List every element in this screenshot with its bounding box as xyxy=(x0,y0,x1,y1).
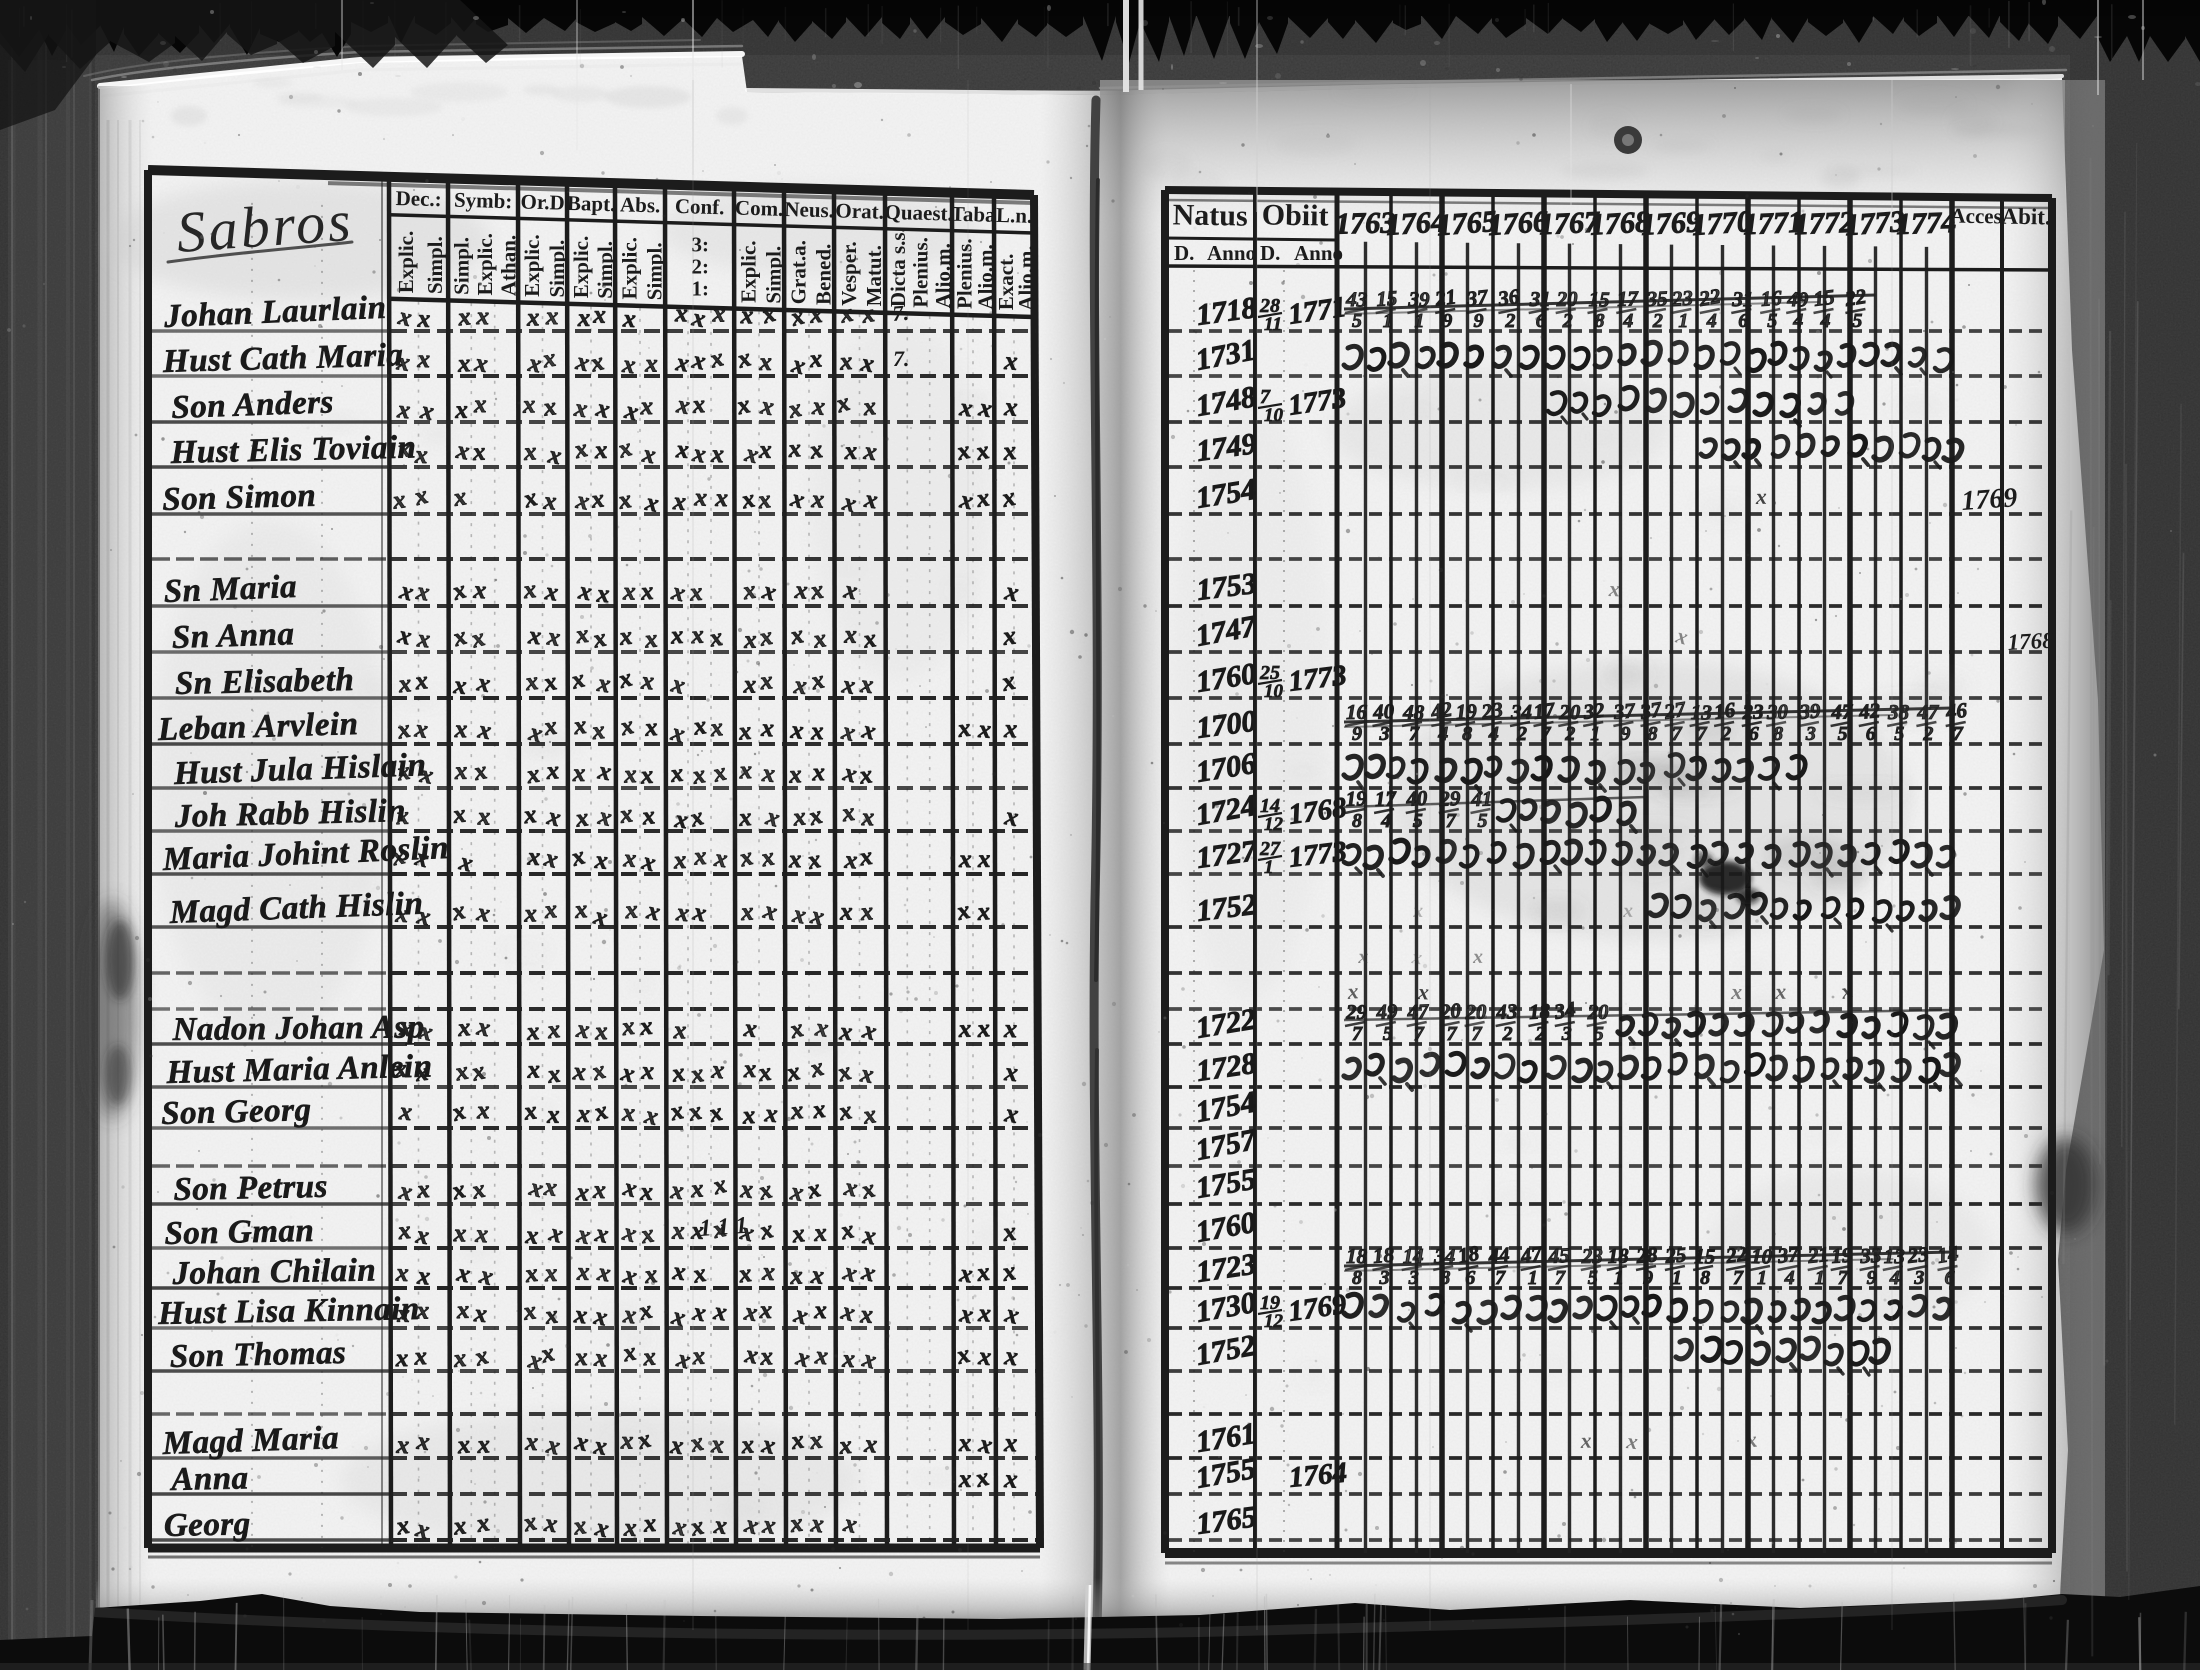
svg-text:x: x xyxy=(861,393,877,421)
svg-text:23: 23 xyxy=(1670,286,1694,312)
svg-text:x: x xyxy=(714,485,728,512)
svg-text:x: x xyxy=(415,1263,431,1291)
svg-text:x: x xyxy=(841,1346,856,1374)
svg-text:22: 22 xyxy=(1724,1241,1749,1268)
svg-text:Joh Rabb Hislin: Joh Rabb Hislin xyxy=(173,793,406,835)
svg-text:x: x xyxy=(396,1301,410,1328)
svg-text:5: 5 xyxy=(1594,1023,1604,1045)
svg-text:x: x xyxy=(743,671,757,698)
svg-text:7: 7 xyxy=(1447,1023,1458,1045)
svg-text:x: x xyxy=(524,1428,539,1456)
svg-text:29: 29 xyxy=(1438,786,1462,811)
svg-text:x: x xyxy=(455,1431,471,1459)
svg-text:Son Gman: Son Gman xyxy=(164,1213,315,1252)
svg-text:7: 7 xyxy=(1446,810,1457,832)
svg-text:5: 5 xyxy=(1838,723,1848,745)
svg-text:x: x xyxy=(451,1345,467,1373)
svg-text:x: x xyxy=(394,901,409,928)
svg-text:x: x xyxy=(476,1431,491,1459)
svg-text:x: x xyxy=(710,1431,725,1459)
svg-text:Alio.m.: Alio.m. xyxy=(1014,245,1038,310)
svg-text:x: x xyxy=(1003,346,1019,376)
svg-text:Anno: Anno xyxy=(1294,241,1343,265)
svg-text:7: 7 xyxy=(1352,1023,1363,1045)
svg-text:Conf.: Conf. xyxy=(675,194,725,219)
svg-text:x: x xyxy=(415,1176,430,1204)
svg-text:3: 3 xyxy=(1805,723,1816,745)
svg-text:Bened.: Bened. xyxy=(812,244,836,305)
svg-text:1764: 1764 xyxy=(1288,1457,1349,1494)
svg-text:x: x xyxy=(545,303,559,330)
svg-text:8: 8 xyxy=(1595,310,1605,332)
svg-text:32: 32 xyxy=(1581,698,1606,724)
svg-text:x: x xyxy=(395,803,410,831)
svg-text:x: x xyxy=(787,761,802,789)
svg-text:Leban Arvlein: Leban Arvlein xyxy=(156,706,359,748)
svg-text:1768: 1768 xyxy=(2007,628,2055,655)
svg-text:x: x xyxy=(710,441,725,469)
svg-text:x: x xyxy=(863,1431,879,1459)
svg-text:Hust Elis Toviain: Hust Elis Toviain xyxy=(169,429,416,471)
svg-text:Natus: Natus xyxy=(1172,198,1248,232)
svg-text:Plenius.: Plenius. xyxy=(909,237,933,308)
svg-text:6: 6 xyxy=(1866,723,1876,745)
svg-text:x: x xyxy=(574,1344,588,1371)
svg-text:1: 1 xyxy=(1528,1267,1538,1289)
svg-text:x: x xyxy=(395,1345,409,1372)
svg-text:x: x xyxy=(977,716,992,744)
svg-text:x: x xyxy=(710,1056,725,1084)
svg-text:10: 10 xyxy=(1264,405,1284,426)
svg-text:8: 8 xyxy=(1440,1267,1450,1289)
svg-text:x: x xyxy=(741,1102,756,1130)
svg-text:3: 3 xyxy=(1913,1267,1924,1289)
svg-text:x: x xyxy=(414,442,429,470)
svg-text:Sn Maria: Sn Maria xyxy=(163,569,298,610)
svg-text:5: 5 xyxy=(1478,810,1488,832)
svg-text:x: x xyxy=(592,1177,606,1204)
svg-text:x: x xyxy=(839,899,853,926)
svg-text:x: x xyxy=(542,896,558,924)
svg-text:x: x xyxy=(473,391,487,418)
svg-text:x: x xyxy=(837,1432,853,1460)
svg-text:x: x xyxy=(787,435,802,463)
svg-text:Explic.: Explic. xyxy=(569,236,593,298)
svg-text:x: x xyxy=(471,439,486,467)
svg-text:2: 2 xyxy=(1504,310,1515,332)
svg-text:45: 45 xyxy=(1547,1243,1570,1268)
svg-text:Son Georg: Son Georg xyxy=(161,1092,312,1132)
svg-text:x: x xyxy=(571,1058,587,1086)
svg-text:x: x xyxy=(1003,714,1018,743)
svg-text:x: x xyxy=(811,759,825,786)
svg-text:2: 2 xyxy=(1564,723,1575,745)
svg-text:Son Anders: Son Anders xyxy=(171,384,335,426)
svg-text:x: x xyxy=(711,300,725,327)
svg-text:x: x xyxy=(976,1015,991,1043)
svg-text:x: x xyxy=(674,436,689,464)
svg-text:Explic.: Explic. xyxy=(473,233,497,295)
svg-text:Magd Maria: Magd Maria xyxy=(161,1420,340,1462)
svg-text:x: x xyxy=(623,761,638,789)
svg-text:x: x xyxy=(622,578,636,605)
svg-text:Simpl.: Simpl. xyxy=(545,240,569,298)
svg-text:Anna: Anna xyxy=(169,1460,249,1498)
svg-text:1: 1 xyxy=(1414,310,1424,332)
svg-text:1773: 1773 xyxy=(1287,835,1348,874)
svg-text:x: x xyxy=(621,1099,636,1127)
svg-text:x: x xyxy=(739,1176,754,1204)
svg-text:x: x xyxy=(739,302,753,329)
svg-text:7: 7 xyxy=(1495,1267,1506,1289)
svg-text:11: 11 xyxy=(1264,314,1282,335)
svg-text:3:: 3: xyxy=(692,233,710,257)
svg-text:x: x xyxy=(639,393,653,420)
svg-text:9: 9 xyxy=(1867,1267,1877,1289)
svg-text:x: x xyxy=(671,1258,687,1286)
svg-text:Dicta s.s.: Dicta s.s. xyxy=(886,227,910,307)
svg-text:8: 8 xyxy=(1700,1267,1710,1289)
svg-text:x: x xyxy=(813,1342,829,1370)
svg-text:7: 7 xyxy=(1555,1267,1566,1289)
svg-text:7: 7 xyxy=(1672,723,1683,745)
svg-text:x: x xyxy=(674,300,688,327)
svg-text:x: x xyxy=(456,1014,472,1042)
svg-text:x: x xyxy=(808,301,824,329)
svg-text:x: x xyxy=(690,622,705,650)
svg-text:8: 8 xyxy=(1773,723,1783,745)
svg-text:x: x xyxy=(642,1510,658,1538)
svg-text:4: 4 xyxy=(1437,723,1448,745)
svg-text:x: x xyxy=(1755,484,1768,509)
svg-text:x: x xyxy=(395,1432,410,1460)
svg-text:x: x xyxy=(669,622,684,650)
svg-text:2:: 2: xyxy=(692,255,710,279)
svg-text:Son Petrus: Son Petrus xyxy=(173,1169,328,1208)
svg-text:x: x xyxy=(692,843,708,871)
svg-text:x: x xyxy=(760,715,775,743)
svg-text:x: x xyxy=(810,486,825,514)
svg-text:7: 7 xyxy=(1541,723,1552,745)
svg-text:Hust Maria Anlein: Hust Maria Anlein xyxy=(165,1049,433,1092)
svg-text:x: x xyxy=(671,1218,685,1245)
svg-text:x: x xyxy=(1412,900,1423,922)
svg-text:x: x xyxy=(809,1262,825,1290)
svg-text:1: 1 xyxy=(1815,1267,1825,1289)
svg-text:Nadon Johan Asp: Nadon Johan Asp xyxy=(171,1009,424,1048)
svg-text:x: x xyxy=(843,622,857,649)
svg-text:x: x xyxy=(644,350,658,377)
svg-text:5: 5 xyxy=(1894,723,1904,745)
svg-text:x: x xyxy=(708,714,724,742)
svg-text:x: x xyxy=(522,438,537,466)
svg-text:x: x xyxy=(1730,979,1742,1004)
svg-text:x: x xyxy=(810,718,824,745)
svg-text:2: 2 xyxy=(1562,310,1573,332)
svg-text:Abs.: Abs. xyxy=(620,192,661,217)
svg-text:8: 8 xyxy=(1462,723,1472,745)
svg-text:2: 2 xyxy=(1922,723,1933,745)
svg-text:4: 4 xyxy=(1380,810,1391,832)
svg-text:x: x xyxy=(957,1430,971,1457)
svg-text:x: x xyxy=(415,625,431,653)
svg-text:x: x xyxy=(838,348,853,376)
svg-text:x: x xyxy=(475,303,489,330)
svg-text:x: x xyxy=(574,1179,590,1207)
svg-text:Abit.: Abit. xyxy=(2001,204,2051,230)
svg-text:4: 4 xyxy=(1706,310,1717,332)
svg-text:7: 7 xyxy=(1733,1267,1744,1289)
svg-text:6: 6 xyxy=(1738,310,1748,332)
svg-text:Orat.: Orat. xyxy=(835,198,884,223)
svg-text:1: 1 xyxy=(1614,1267,1624,1289)
svg-text:x: x xyxy=(813,1220,828,1247)
svg-text:x: x xyxy=(593,437,607,464)
svg-text:7: 7 xyxy=(1414,1023,1425,1045)
svg-text:2: 2 xyxy=(1516,723,1527,745)
svg-text:x: x xyxy=(760,760,776,788)
svg-text:x: x xyxy=(1003,1464,1019,1494)
svg-text:x: x xyxy=(761,1258,776,1286)
svg-text:x: x xyxy=(743,627,757,654)
svg-text:43: 43 xyxy=(1495,999,1518,1024)
svg-text:10: 10 xyxy=(1264,681,1284,702)
svg-text:5: 5 xyxy=(1413,810,1423,832)
svg-text:x: x xyxy=(573,896,589,924)
svg-text:L.n.: L.n. xyxy=(996,203,1033,228)
svg-text:17: 17 xyxy=(1374,786,1397,811)
svg-text:x: x xyxy=(476,1097,490,1124)
svg-text:x: x xyxy=(793,577,808,605)
svg-text:x: x xyxy=(808,345,824,373)
svg-text:Vesper.: Vesper. xyxy=(837,241,861,305)
svg-text:x: x xyxy=(789,1262,804,1290)
svg-text:x: x xyxy=(739,1431,755,1459)
svg-text:5: 5 xyxy=(1383,1023,1393,1045)
svg-text:x: x xyxy=(792,672,808,700)
svg-text:Simpl.: Simpl. xyxy=(423,236,447,294)
svg-text:41: 41 xyxy=(1470,786,1493,811)
svg-text:x: x xyxy=(523,900,537,927)
svg-text:x: x xyxy=(396,435,412,463)
svg-text:x: x xyxy=(395,1259,410,1287)
svg-text:2: 2 xyxy=(1502,1023,1513,1045)
svg-text:x: x xyxy=(672,1017,686,1044)
svg-text:x: x xyxy=(1472,946,1483,968)
svg-text:x: x xyxy=(810,393,826,421)
svg-text:x: x xyxy=(472,577,487,605)
svg-text:23: 23 xyxy=(1905,1242,1930,1268)
svg-text:x: x xyxy=(1357,946,1368,968)
svg-text:20: 20 xyxy=(1464,1000,1487,1025)
svg-text:1: 1 xyxy=(1264,857,1274,878)
svg-text:34: 34 xyxy=(1510,700,1532,724)
svg-text:x: x xyxy=(577,305,591,332)
svg-text:x: x xyxy=(592,302,606,329)
svg-text:x: x xyxy=(643,626,659,654)
svg-text:Explic.: Explic. xyxy=(520,234,544,296)
svg-text:x: x xyxy=(1003,1014,1018,1043)
svg-text:x: x xyxy=(672,847,687,875)
svg-text:Matut.: Matut. xyxy=(862,245,886,306)
svg-text:22: 22 xyxy=(1842,284,1868,311)
svg-text:x: x xyxy=(859,898,875,926)
svg-text:Taba: Taba xyxy=(950,202,996,227)
svg-text:5: 5 xyxy=(1767,310,1777,332)
svg-text:x: x xyxy=(813,1297,827,1324)
svg-text:Explic.: Explic. xyxy=(618,237,642,299)
svg-text:12: 12 xyxy=(1264,1311,1284,1332)
svg-text:Sn Elisabeth: Sn Elisabeth xyxy=(175,662,355,702)
svg-text:x: x xyxy=(639,1179,653,1206)
svg-text:Simpl.: Simpl. xyxy=(593,241,617,299)
svg-text:x: x xyxy=(671,488,687,516)
svg-text:2: 2 xyxy=(1534,1023,1545,1045)
svg-text:x: x xyxy=(594,1018,608,1045)
svg-text:18: 18 xyxy=(1528,999,1551,1024)
svg-text:Explic.: Explic. xyxy=(394,231,418,293)
svg-text:x: x xyxy=(415,1297,429,1324)
svg-text:40: 40 xyxy=(1405,786,1429,811)
svg-text:Son Simon: Son Simon xyxy=(162,478,317,518)
svg-text:x: x xyxy=(739,898,754,926)
svg-text:Simpl.: Simpl. xyxy=(450,237,474,295)
svg-text:Grat.a.: Grat.a. xyxy=(787,240,811,304)
svg-text:22: 22 xyxy=(1697,284,1723,312)
svg-text:x: x xyxy=(640,1058,654,1085)
svg-text:x: x xyxy=(859,1301,873,1328)
svg-text:x: x xyxy=(455,1297,470,1325)
svg-text:Quaest.: Quaest. xyxy=(884,200,953,226)
svg-text:1:: 1: xyxy=(692,277,710,301)
svg-text:34: 34 xyxy=(1552,997,1578,1024)
svg-text:x: x xyxy=(543,1260,557,1287)
svg-text:x: x xyxy=(758,349,772,376)
svg-text:x: x xyxy=(472,1300,488,1328)
svg-text:6: 6 xyxy=(1749,723,1759,745)
svg-text:1: 1 xyxy=(1678,310,1688,332)
svg-text:x: x xyxy=(592,1344,608,1372)
svg-text:x: x xyxy=(522,391,536,418)
svg-text:1 1 1: 1 1 1 xyxy=(699,1213,749,1242)
svg-text:5: 5 xyxy=(1588,1267,1598,1289)
svg-text:7: 7 xyxy=(1838,1267,1849,1289)
svg-text:x: x xyxy=(576,1259,590,1286)
svg-text:7: 7 xyxy=(1472,1023,1483,1045)
svg-text:x: x xyxy=(416,306,430,333)
svg-text:x: x xyxy=(477,803,491,830)
svg-text:44: 44 xyxy=(1487,1242,1511,1268)
svg-text:D.: D. xyxy=(1260,241,1280,265)
svg-text:x: x xyxy=(392,1056,408,1084)
svg-text:1: 1 xyxy=(1757,1267,1767,1289)
svg-text:x: x xyxy=(643,714,659,742)
svg-text:9: 9 xyxy=(1442,310,1452,332)
svg-text:7.: 7. xyxy=(893,346,910,371)
svg-text:x: x xyxy=(454,397,468,424)
svg-text:x: x xyxy=(454,758,468,785)
svg-text:31: 31 xyxy=(1529,287,1551,311)
svg-text:x: x xyxy=(526,622,542,650)
svg-text:Bapt.: Bapt. xyxy=(567,191,616,216)
svg-text:x: x xyxy=(789,717,805,745)
svg-text:9: 9 xyxy=(1643,1267,1653,1289)
svg-text:Hust Lisa Kinnain: Hust Lisa Kinnain xyxy=(157,1291,420,1332)
svg-text:Dec.:: Dec.: xyxy=(395,186,442,211)
svg-text:x: x xyxy=(693,484,707,511)
svg-text:14: 14 xyxy=(1936,1241,1960,1268)
svg-text:x: x xyxy=(1003,1428,1018,1457)
svg-text:20: 20 xyxy=(1558,700,1581,724)
svg-text:x: x xyxy=(958,846,972,873)
svg-text:7.: 7. xyxy=(891,300,909,326)
svg-text:x: x xyxy=(763,1100,779,1128)
svg-text:5: 5 xyxy=(1852,310,1862,332)
svg-text:x: x xyxy=(621,305,636,333)
svg-text:Hust Cath Maria: Hust Cath Maria xyxy=(162,337,404,380)
svg-text:4: 4 xyxy=(1488,723,1499,745)
svg-text:x: x xyxy=(576,1100,591,1128)
svg-text:x: x xyxy=(843,847,858,875)
svg-text:x: x xyxy=(526,304,540,331)
svg-text:Symb:: Symb: xyxy=(454,188,513,214)
svg-text:Son Thomas: Son Thomas xyxy=(169,1335,346,1375)
svg-text:x: x xyxy=(639,578,654,606)
svg-text:7: 7 xyxy=(1953,723,1964,745)
svg-text:4: 4 xyxy=(1820,310,1831,332)
svg-text:2: 2 xyxy=(1652,310,1663,332)
svg-text:x: x xyxy=(639,667,655,695)
svg-text:Neus.: Neus. xyxy=(784,197,834,222)
svg-text:4: 4 xyxy=(1784,1267,1795,1289)
svg-text:x: x xyxy=(623,896,638,924)
svg-text:13: 13 xyxy=(1884,1244,1905,1268)
svg-text:3: 3 xyxy=(1561,1023,1572,1045)
svg-text:x: x xyxy=(453,716,467,743)
svg-text:x: x xyxy=(789,1097,805,1125)
svg-text:Georg: Georg xyxy=(164,1506,252,1544)
svg-text:9: 9 xyxy=(1474,310,1484,332)
svg-text:x: x xyxy=(861,804,875,831)
svg-text:x: x xyxy=(526,1056,540,1083)
svg-text:x: x xyxy=(525,1018,540,1046)
svg-text:23: 23 xyxy=(1581,1244,1603,1268)
svg-text:x: x xyxy=(689,1175,704,1203)
svg-text:Anno: Anno xyxy=(1207,241,1256,265)
svg-text:x: x xyxy=(758,667,774,695)
svg-text:Sn Anna: Sn Anna xyxy=(171,616,295,656)
svg-text:20: 20 xyxy=(1438,998,1463,1024)
svg-text:x: x xyxy=(456,350,471,378)
svg-text:x: x xyxy=(1579,1428,1592,1453)
svg-text:x: x xyxy=(788,846,802,873)
svg-text:6: 6 xyxy=(1465,1267,1475,1289)
svg-text:x: x xyxy=(572,760,586,787)
svg-text:x: x xyxy=(452,672,468,700)
svg-text:1: 1 xyxy=(1590,723,1600,745)
svg-text:x: x xyxy=(976,1343,992,1371)
svg-text:x: x xyxy=(397,1098,413,1126)
svg-text:x: x xyxy=(638,1013,654,1041)
svg-text:x: x xyxy=(1607,576,1620,601)
svg-text:x: x xyxy=(977,846,991,873)
svg-text:x: x xyxy=(542,488,558,516)
svg-text:x: x xyxy=(957,1016,971,1043)
svg-text:1: 1 xyxy=(1672,1267,1682,1289)
svg-text:x: x xyxy=(413,1343,428,1371)
svg-text:Com.: Com. xyxy=(735,196,784,221)
svg-text:x: x xyxy=(1002,1057,1019,1087)
